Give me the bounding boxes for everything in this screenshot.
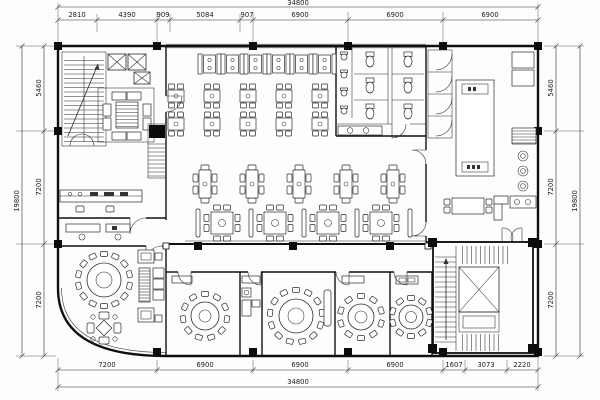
dim-label-bottom-total: 34800	[287, 378, 309, 386]
urinal	[341, 106, 348, 114]
dim-label: 7200	[547, 178, 555, 195]
planter-divider	[408, 209, 412, 237]
column	[344, 42, 352, 50]
dim-label-right-total: 19800	[571, 190, 579, 212]
column	[153, 42, 161, 50]
column	[534, 42, 542, 50]
dim-label: 6900	[386, 11, 403, 19]
dim-label: 7200	[547, 291, 555, 308]
dim-label: 6900	[481, 11, 498, 19]
urinal	[341, 70, 348, 78]
dim-label: 4390	[118, 11, 135, 19]
text-mark	[477, 165, 480, 169]
dim-label: 6900	[196, 361, 213, 369]
toilet	[404, 104, 412, 119]
dim-label: 7200	[35, 291, 43, 308]
toilet	[404, 52, 412, 67]
tv-cabinet	[139, 268, 150, 302]
column	[194, 242, 202, 250]
kitchen-island	[456, 80, 494, 176]
column	[344, 348, 352, 356]
column	[249, 42, 257, 50]
column	[54, 240, 62, 248]
dim-label: 7200	[35, 178, 43, 195]
text-mark	[473, 87, 476, 91]
booth-table	[221, 54, 244, 74]
booth-table	[244, 54, 267, 74]
dim-label: 3073	[477, 361, 494, 369]
toilet	[366, 52, 374, 67]
floor-plan-sheet: 34800 2810 4390 909 5084 907 6900 6900 6…	[0, 0, 600, 400]
toilet	[366, 104, 374, 119]
dim-label: 6900	[291, 11, 308, 19]
booth-table	[313, 54, 336, 74]
dim-label: 7200	[98, 361, 115, 369]
room-sofa	[324, 290, 331, 326]
column	[439, 42, 447, 50]
dim-label: 5084	[196, 11, 213, 19]
cashier-desk	[106, 224, 130, 232]
console	[342, 276, 364, 283]
toilet	[366, 78, 374, 93]
dim-label: 2810	[68, 11, 85, 19]
booth-seating-row	[198, 54, 336, 74]
planter-divider	[249, 209, 253, 237]
dim-label-top-total: 34800	[287, 0, 309, 7]
floor-plan-canvas: 34800 2810 4390 909 5084 907 6900 6900 6…	[0, 0, 600, 400]
text-mark	[472, 165, 475, 169]
text-mark	[467, 165, 470, 169]
urinal	[341, 52, 348, 60]
bar-stool	[76, 206, 84, 212]
column	[439, 348, 447, 356]
booth-table	[198, 54, 221, 74]
cashier-desk	[66, 224, 100, 232]
column	[163, 243, 169, 249]
planter-divider	[302, 209, 306, 237]
column	[54, 127, 62, 135]
column	[54, 42, 62, 50]
dim-label: 1607	[445, 361, 462, 369]
column	[249, 348, 257, 356]
booth-table	[290, 54, 313, 74]
planter-divider	[196, 209, 200, 237]
bar-stool	[106, 206, 114, 212]
dim-label: 5460	[35, 79, 43, 96]
elevator-shaft	[459, 267, 499, 312]
column	[153, 348, 161, 356]
dim-label: 6900	[386, 361, 403, 369]
text-mark	[468, 87, 471, 91]
column	[386, 242, 394, 250]
console	[172, 276, 192, 283]
urinal	[341, 88, 348, 96]
booth-table	[267, 54, 290, 74]
dim-label: 909	[157, 11, 170, 19]
dim-label: 5460	[547, 79, 555, 96]
dim-label: 907	[241, 11, 254, 19]
dim-label: 2220	[513, 361, 530, 369]
prep-table	[452, 198, 484, 214]
planter-divider	[355, 209, 359, 237]
column	[289, 242, 297, 250]
dim-label: 6900	[291, 361, 308, 369]
pos-terminal	[112, 226, 117, 230]
dim-label-left-total: 19800	[13, 190, 21, 212]
toilet	[404, 78, 412, 93]
